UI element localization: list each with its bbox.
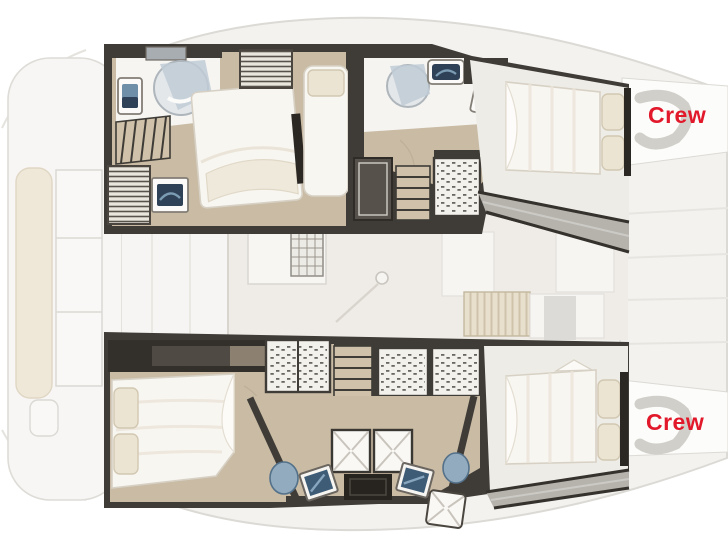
port-hull	[104, 44, 631, 252]
salon-hatch	[544, 296, 576, 340]
port-aft-stairs	[116, 116, 170, 164]
galley-appliance-c	[432, 348, 480, 396]
crew-label-bow-bottom: Crew	[646, 411, 704, 434]
port-fwd-stairs	[396, 166, 430, 220]
galley-appliance-a	[266, 340, 330, 392]
nav-table	[344, 474, 392, 500]
salon-settee	[442, 232, 494, 296]
berth-pillow	[308, 70, 344, 96]
washer-unit	[434, 150, 480, 216]
crew-label-bow-top: Crew	[648, 104, 706, 127]
pillow	[602, 94, 624, 130]
galley-counter	[464, 292, 530, 336]
port-vanity-sink	[152, 178, 188, 212]
galley-appliance-b	[378, 348, 428, 396]
salon-door-knob	[376, 272, 388, 284]
port-wardrobe-louver	[108, 166, 150, 224]
cockpit-table	[56, 170, 102, 386]
nav-seat-left	[332, 430, 370, 472]
floorplan-svg	[0, 0, 728, 546]
pillow	[114, 434, 138, 474]
port-aft-bed	[191, 83, 308, 208]
stbd-headboard-cabinet	[108, 340, 270, 372]
pillow	[602, 136, 624, 170]
pillow	[598, 424, 620, 460]
floorplan-image: Crew Crew	[0, 0, 728, 546]
helm-stool-right	[443, 453, 469, 483]
port-single-berth	[304, 66, 348, 196]
cockpit-floor	[122, 228, 230, 344]
port-fwd-bed	[506, 82, 631, 176]
pillow	[598, 380, 620, 418]
aft-seat-pad	[426, 490, 466, 529]
starboard-hull	[104, 332, 629, 528]
cockpit-bench-cushion	[16, 168, 52, 398]
sink	[428, 60, 464, 84]
port-wardrobe-top	[240, 50, 292, 88]
galley-fridge-grid	[291, 230, 323, 276]
bathroom-window	[146, 47, 186, 60]
toilet	[118, 78, 142, 114]
port-cabinet	[354, 158, 392, 220]
helm-stool-left	[270, 462, 298, 494]
stbd-aft-bed	[112, 374, 234, 488]
stbd-stairs	[334, 346, 372, 398]
cockpit-seat	[30, 400, 58, 436]
pillow	[114, 388, 138, 428]
